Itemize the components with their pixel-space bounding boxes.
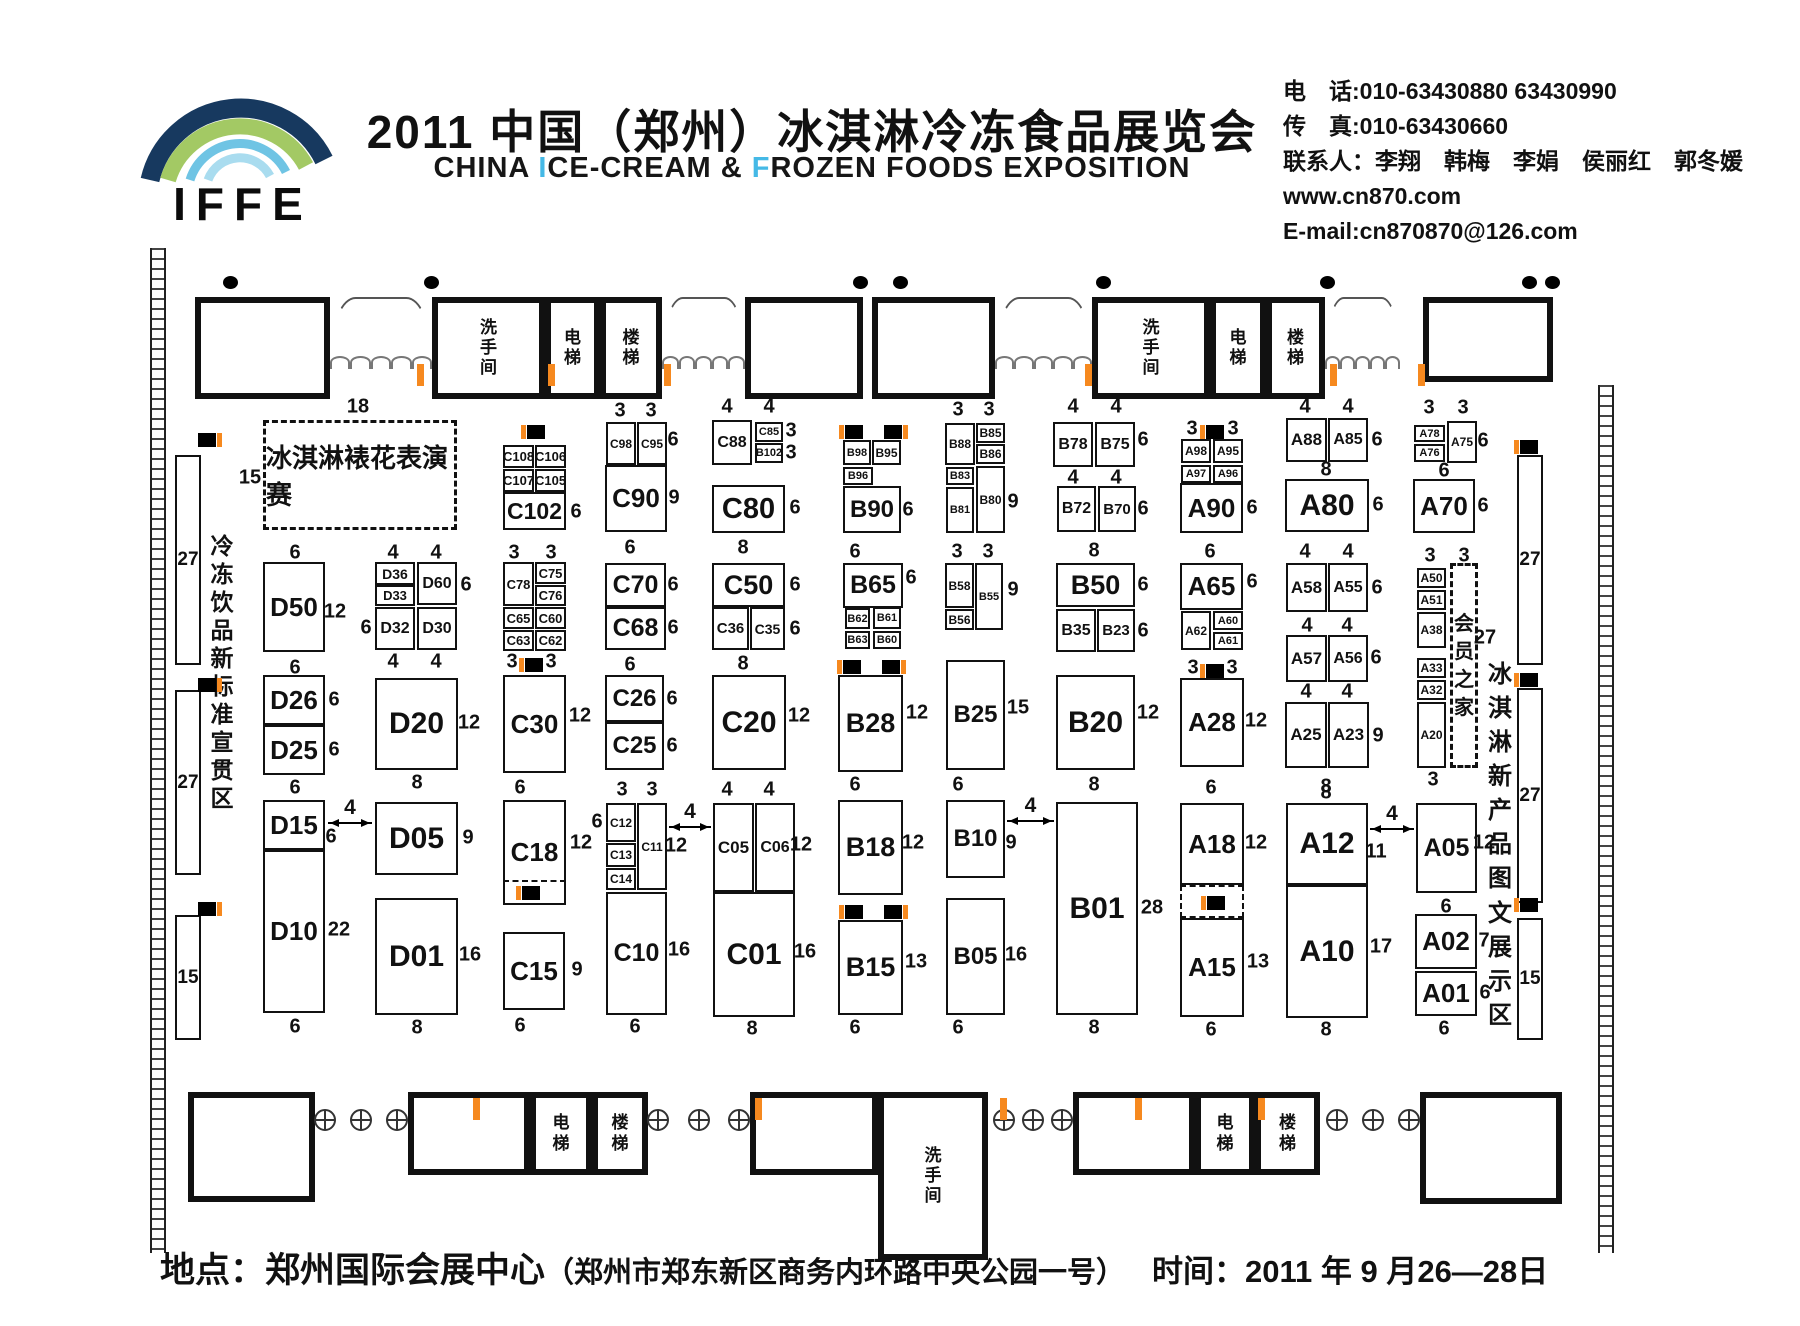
venue-label: 地点：郑州国际会展中心 (160, 1251, 545, 1290)
booth-D25: D25 (263, 725, 325, 775)
booth-B23: B23 (1097, 609, 1135, 652)
column-dot (223, 276, 238, 289)
room-电梯: 电 梯 (530, 1092, 592, 1175)
room (188, 1092, 315, 1202)
hydrant-tick (1514, 440, 1519, 454)
wall-tick (664, 364, 671, 386)
dim-label: 6 (514, 1015, 525, 1038)
room-洗手间: 洗 手 间 (432, 297, 545, 399)
booth-D60: D60 (417, 562, 457, 605)
wall-tick (1258, 1098, 1265, 1120)
dim-label: 6 (1137, 429, 1148, 452)
booth-A61: A61 (1213, 632, 1243, 650)
dim-label: 4 (430, 651, 441, 674)
room-label: 楼 梯 (623, 328, 640, 368)
booth-B85: B85 (976, 423, 1005, 443)
booth-B62: B62 (845, 608, 870, 629)
dim-label: 3 (545, 651, 556, 674)
booth-D36: D36 (375, 562, 415, 585)
dim-label: 6 (591, 811, 602, 834)
booth-A38: A38 (1417, 612, 1446, 648)
booth-C26: C26 (605, 675, 664, 722)
dim-label: 3 (951, 541, 962, 564)
dim-label: 6 (1479, 982, 1490, 1005)
dim-label: 12 (1137, 702, 1159, 725)
dim-label: 8 (1320, 1019, 1331, 1042)
hydrant-tick (519, 658, 524, 672)
dim-label: 6 (629, 1016, 640, 1039)
aisle-width-arrow: 4 (1007, 820, 1054, 822)
booth-A50: A50 (1417, 568, 1446, 588)
booth-A62: A62 (1181, 611, 1211, 650)
booth-B60: B60 (873, 631, 901, 649)
booth-A28: A28 (1180, 678, 1244, 767)
booth-C63: C63 (503, 630, 534, 651)
subtitle-accent-letter: F (752, 152, 771, 184)
dim-label: 4 (1110, 467, 1121, 490)
booth-C108: C108 (503, 445, 534, 468)
hydrant-tick (839, 425, 844, 439)
booth-B96: B96 (843, 467, 873, 485)
booth-C36: C36 (712, 607, 749, 650)
hydrant-tick (1201, 896, 1206, 910)
wall-tick (1135, 1098, 1142, 1120)
dim-label: 3 (508, 542, 519, 565)
booth-B55: B55 (975, 563, 1003, 630)
wall-tick (1000, 1098, 1007, 1120)
booth-A70: A70 (1413, 479, 1475, 533)
booth-D01: D01 (375, 898, 458, 1015)
booth-D10: D10 (263, 850, 325, 1013)
booth-C15: C15 (503, 932, 565, 1010)
dim-label: 8 (411, 1017, 422, 1040)
contact-line: 传 真:010-63430660 (1283, 109, 1743, 144)
floor-plan: 洗 手 间电 梯楼 梯洗 手 间电 梯楼 梯电 梯楼 梯洗 手 间电 梯楼 梯2… (150, 240, 1615, 1290)
hydrant-marker (843, 660, 861, 674)
dim-label: 12 (324, 601, 346, 624)
booth-B50: B50 (1056, 563, 1135, 607)
dim-label: 6 (1438, 1018, 1449, 1041)
hydrant-tick (1200, 664, 1205, 678)
dim-label: 6 (328, 739, 339, 762)
dim-label: 15 (239, 467, 261, 490)
dim-label: 3 (952, 399, 963, 422)
dim-label: 6 (460, 574, 471, 597)
dim-label: 12 (1245, 832, 1267, 855)
dim-label: 28 (1141, 897, 1163, 920)
dim-label: 6 (289, 777, 300, 800)
aisle-width-label: 4 (684, 800, 696, 824)
hydrant-tick (903, 425, 908, 439)
booth-A65: A65 (1180, 563, 1243, 610)
booth-C70: C70 (605, 563, 666, 607)
booth-A12: A12 (1286, 803, 1368, 885)
dim-label: 4 (387, 651, 398, 674)
dim-label: 9 (668, 487, 679, 510)
booth-B83: B83 (946, 467, 974, 485)
column-dot (893, 276, 908, 289)
dim-label: 6 (1205, 777, 1216, 800)
booth-C30: C30 (503, 675, 566, 773)
dim-label: 8 (1320, 782, 1331, 805)
dim-label: 6 (789, 497, 800, 520)
dim-label: 3 (1457, 397, 1468, 420)
page-subtitle: CHINA ICE-CREAM & FROZEN FOODS EXPOSITIO… (434, 152, 1191, 185)
room-label: 楼 梯 (1279, 1113, 1296, 1153)
revolving-door-chain (647, 1108, 750, 1132)
room (1423, 297, 1553, 382)
booth-B80: B80 (976, 466, 1005, 533)
booth-C65: C65 (503, 607, 534, 629)
dim-label: 4 (1301, 615, 1312, 638)
booth-C62: C62 (535, 630, 566, 651)
hydrant-tick (1514, 898, 1519, 912)
dim-label: 4 (1067, 396, 1078, 419)
room (750, 1092, 878, 1175)
dim-label: 4 (763, 396, 774, 419)
hatched-wall (150, 248, 166, 1253)
exhibition-floorplan-page: { "header": { "logo_text": "IFFE", "titl… (0, 0, 1800, 1326)
booth-C25: C25 (605, 722, 664, 770)
dim-label: 27 (1474, 627, 1496, 650)
dim-label: 12 (569, 705, 591, 728)
hatched-wall (1598, 385, 1614, 1253)
room-label: 电 梯 (553, 1113, 570, 1153)
hydrant-marker (522, 886, 540, 900)
dim-label: 3 (1424, 545, 1435, 568)
hydrant-tick (217, 902, 222, 916)
dim-label: 6 (905, 567, 916, 590)
entrance-arch (330, 297, 432, 369)
dimension-strip: 27 (1517, 455, 1543, 665)
hydrant-tick (903, 905, 908, 919)
hydrant-marker (845, 425, 863, 439)
dim-label: 3 (1458, 545, 1469, 568)
hydrant-tick (217, 433, 222, 447)
booth-A23: A23 (1328, 702, 1369, 768)
booth-A18: A18 (1180, 803, 1244, 885)
booth-B58: B58 (945, 563, 974, 608)
member-home-area: 会 员 之 家 (1450, 563, 1478, 768)
room-label: 洗 手 间 (925, 1146, 942, 1206)
dim-label: 6 (1137, 498, 1148, 521)
hydrant-tick (1514, 673, 1519, 687)
hydrant-tick (901, 660, 906, 674)
column-dot (1320, 276, 1335, 289)
performance-area: 冰淇淋裱花表演赛 (263, 420, 457, 530)
booth-D32: D32 (375, 607, 415, 650)
booth-A78: A78 (1414, 425, 1445, 442)
booth-B70: B70 (1098, 486, 1136, 532)
booth-A98: A98 (1181, 439, 1211, 463)
booth-A57: A57 (1286, 635, 1327, 682)
dim-label: 4 (1342, 541, 1353, 564)
booth-C35: C35 (750, 607, 785, 650)
booth-D15: D15 (263, 800, 325, 850)
hydrant-marker (1520, 440, 1538, 454)
booth-C98: C98 (606, 422, 636, 465)
dim-label: 12 (790, 834, 812, 857)
revolving-door-chain (1326, 1108, 1420, 1132)
booth-A80: A80 (1285, 479, 1369, 532)
booth-A51: A51 (1417, 590, 1446, 610)
wall-tick (1085, 364, 1092, 386)
dim-label: 3 (645, 400, 656, 423)
dim-label: 8 (411, 772, 422, 795)
booth-C14: C14 (606, 868, 636, 890)
dim-label: 3 (545, 542, 556, 565)
booth-B01: B01 (1056, 802, 1138, 1015)
dim-label: 6 (360, 617, 371, 640)
dim-label: 6 (325, 826, 336, 849)
dim-label: 6 (624, 654, 635, 677)
dim-label: 6 (1246, 497, 1257, 520)
dim-label: 12 (458, 712, 480, 735)
booth-A25: A25 (1285, 702, 1327, 768)
hydrant-marker (525, 658, 543, 672)
dim-label: 8 (1088, 774, 1099, 797)
booth-A97: A97 (1181, 465, 1211, 483)
booth-C01: C01 (713, 892, 795, 1017)
room-电梯: 电 梯 (1195, 1092, 1255, 1175)
dim-label: 12 (902, 832, 924, 855)
booth-D26: D26 (263, 675, 325, 725)
booth-C76: C76 (535, 585, 566, 606)
dim-label: 3 (506, 651, 517, 674)
room (872, 297, 995, 399)
aisle-width-arrow: 4 (669, 826, 711, 828)
dim-label: 16 (794, 941, 816, 964)
dim-label: 3 (982, 541, 993, 564)
booth-C85: C85 (755, 422, 783, 442)
dimension-strip: 27 (175, 455, 201, 665)
booth-D50: D50 (263, 562, 325, 652)
dim-label: 6 (1440, 896, 1451, 919)
dim-label: 4 (1299, 396, 1310, 419)
dim-label: 3 (646, 779, 657, 802)
dim-label: 6 (1438, 460, 1449, 483)
booth-C106: C106 (535, 445, 566, 468)
svg-text:IFFE: IFFE (173, 178, 313, 230)
room (408, 1092, 530, 1175)
booth-C105: C105 (535, 469, 566, 492)
room (1420, 1092, 1562, 1204)
hydrant-tick (837, 660, 842, 674)
hydrant-tick (521, 425, 526, 439)
booth-C10: C10 (606, 892, 667, 1015)
dim-label: 3 (614, 400, 625, 423)
room-label: 楼 梯 (1287, 328, 1304, 368)
hydrant-marker (884, 425, 902, 439)
room-洗手间: 洗 手 间 (1092, 297, 1210, 399)
booth-C95: C95 (637, 422, 667, 465)
booth-B10: B10 (946, 800, 1005, 878)
room-楼梯: 楼 梯 (600, 297, 662, 399)
dimension-strip: 27 (175, 690, 201, 875)
dim-label: 9 (1007, 579, 1018, 602)
dim-label: 3 (1427, 769, 1438, 792)
booth-B102: B102 (755, 443, 783, 463)
dim-label: 6 (1137, 574, 1148, 597)
dim-label: 6 (666, 688, 677, 711)
hydrant-marker (1206, 664, 1224, 678)
booth-C90: C90 (605, 465, 667, 532)
dim-label: 22 (328, 919, 350, 942)
booth-A33: A33 (1417, 658, 1446, 678)
booth-C05: C05 (713, 803, 754, 892)
booth-C68: C68 (605, 607, 666, 650)
aisle-width-arrow: 4 (1370, 828, 1414, 830)
room (745, 297, 863, 399)
dim-label: 6 (849, 774, 860, 797)
contact-info: 电 话:010-63430880 63430990传 真:010-6343066… (1283, 74, 1743, 249)
booth-A55: A55 (1328, 563, 1368, 612)
booth-A10: A10 (1286, 885, 1368, 1018)
dim-label: 4 (387, 542, 398, 565)
booth-C60: C60 (535, 607, 566, 629)
dim-label: 17 (1370, 936, 1392, 959)
booth-A88: A88 (1286, 418, 1327, 462)
dim-label: 6 (570, 501, 581, 524)
dim-label: 3 (1227, 418, 1238, 441)
room-label: 电 梯 (1230, 328, 1247, 368)
wall-tick (1330, 364, 1337, 386)
dim-label: 11 (1365, 841, 1386, 864)
booth-A58: A58 (1286, 563, 1327, 612)
dim-label: 3 (1186, 418, 1197, 441)
dim-label: 6 (952, 1017, 963, 1040)
wall-tick (473, 1098, 480, 1120)
booth-A75: A75 (1447, 421, 1477, 463)
booth-C13: C13 (606, 843, 636, 867)
dim-label: 8 (737, 653, 748, 676)
dim-label: 6 (667, 617, 678, 640)
dim-label: 6 (666, 735, 677, 758)
booth-B90: B90 (843, 486, 901, 533)
hydrant-marker (198, 678, 216, 692)
dim-label: 12 (665, 835, 687, 858)
subtitle-text: CE-CREAM & (547, 152, 751, 184)
entrance-arch (995, 297, 1092, 369)
booth-C50: C50 (712, 563, 785, 607)
booth-C11: C11 (637, 803, 667, 890)
booth-B86: B86 (976, 444, 1005, 464)
aisle-width-label: 4 (1025, 794, 1037, 818)
dim-label: 6 (328, 689, 339, 712)
room (195, 297, 330, 399)
booth-A05: A05 (1416, 803, 1477, 893)
dim-label: 9 (1007, 491, 1018, 514)
dim-label: 6 (789, 574, 800, 597)
dim-label: 4 (763, 779, 774, 802)
revolving-door-chain (314, 1108, 408, 1132)
booth-B25: B25 (946, 660, 1005, 770)
dim-label: 6 (289, 542, 300, 565)
dim-label: 6 (902, 499, 913, 522)
booth-C20: C20 (712, 675, 786, 770)
booth-B05: B05 (946, 898, 1005, 1015)
dim-label: 8 (746, 1018, 757, 1041)
time-text: 时间：2011 年 9 月26—28日 (1152, 1246, 1548, 1291)
dimension-strip: 15 (175, 915, 201, 1040)
dim-label: 15 (1007, 697, 1029, 720)
booth-A20: A20 (1417, 702, 1446, 768)
venue-address: （郑州市郑东新区商务内环路中央公园一号） (545, 1257, 1125, 1289)
booth-A56: A56 (1328, 635, 1368, 682)
booth-D05: D05 (375, 802, 458, 875)
dim-label: 12 (1473, 832, 1495, 855)
booth-C75: C75 (535, 562, 566, 584)
booth-D33: D33 (375, 585, 415, 606)
booth-D20: D20 (375, 678, 458, 770)
booth-A15: A15 (1180, 918, 1244, 1017)
dim-label: 6 (952, 774, 963, 797)
dim-label: 4 (1341, 681, 1352, 704)
booth-B28: B28 (838, 675, 903, 772)
dim-label: 3 (1423, 397, 1434, 420)
dim-label: 6 (667, 429, 678, 452)
dim-label: 13 (905, 951, 927, 974)
booth-C107: C107 (503, 469, 534, 492)
booth-A60: A60 (1213, 611, 1243, 630)
wall-tick (1418, 364, 1425, 386)
dim-label: 6 (849, 541, 860, 564)
booth-A32: A32 (1417, 680, 1446, 700)
contact-line: 电 话:010-63430880 63430990 (1283, 74, 1743, 109)
wall-tick (548, 364, 555, 386)
subtitle-text: CHINA (434, 152, 539, 184)
zone-left-label: 冷 冻 饮 品 新 标 准 宣 贯 区 (211, 532, 234, 812)
dim-label: 6 (1371, 577, 1382, 600)
room-label: 电 梯 (1217, 1113, 1234, 1153)
aisle-width-label: 4 (344, 796, 356, 820)
column-dot (1545, 276, 1560, 289)
booth-B65: B65 (843, 563, 903, 608)
booth-B56: B56 (945, 609, 974, 630)
dim-label: 12 (1245, 710, 1267, 733)
hydrant-tick (217, 678, 222, 692)
dim-label: 3 (785, 442, 796, 465)
room-楼梯: 楼 梯 (1266, 297, 1325, 399)
dim-label: 6 (514, 777, 525, 800)
dim-label: 16 (668, 939, 690, 962)
column-dot (424, 276, 439, 289)
booth-A90: A90 (1180, 483, 1243, 533)
room-洗手间: 洗 手 间 (878, 1092, 988, 1260)
dim-label: 6 (1204, 541, 1215, 564)
dim-label: 6 (1372, 494, 1383, 517)
booth-B75: B75 (1095, 422, 1135, 467)
dim-label: 6 (667, 574, 678, 597)
booth-C80: C80 (712, 485, 785, 533)
hydrant-marker (882, 660, 900, 674)
dim-label: 4 (1067, 467, 1078, 490)
booth-C12: C12 (606, 803, 636, 842)
dim-label: 6 (789, 618, 800, 641)
hydrant-marker (1520, 898, 1538, 912)
booth-B61: B61 (873, 607, 901, 629)
column-dot (853, 276, 868, 289)
booth-A95: A95 (1213, 439, 1243, 463)
hydrant-tick (1200, 425, 1205, 439)
room (1073, 1092, 1195, 1175)
dim-label: 4 (1300, 681, 1311, 704)
booth-B15: B15 (838, 920, 903, 1015)
hydrant-marker (198, 433, 216, 447)
hydrant-marker (845, 905, 863, 919)
aisle-width-label: 4 (1386, 802, 1398, 826)
wall-tick (755, 1098, 762, 1120)
